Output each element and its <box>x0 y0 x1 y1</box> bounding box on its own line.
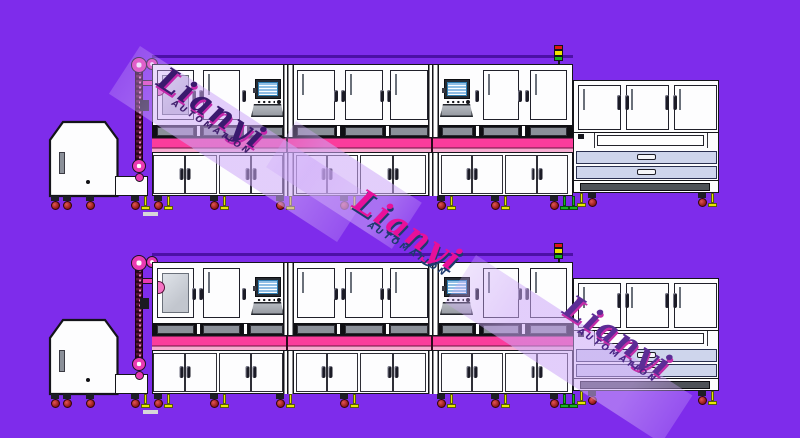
door-handle-icon <box>388 366 399 378</box>
cabinet-frame-line <box>707 331 708 346</box>
door-handle-icon <box>380 288 391 300</box>
window-panel <box>483 70 519 120</box>
hopper-dot <box>86 378 90 382</box>
cabinet-door-pair <box>219 353 283 392</box>
door-handle-icon <box>617 95 629 110</box>
cabinet-door-pair <box>505 155 568 194</box>
door-handle-icon <box>180 366 191 378</box>
bay-divider <box>428 351 439 394</box>
window-glass <box>302 74 304 95</box>
cabinet-window <box>578 85 621 130</box>
leveling-foot-icon <box>164 394 173 408</box>
hmi-monitor-icon <box>444 79 470 99</box>
cabinet-door-pair <box>441 353 503 392</box>
door-handle-icon <box>665 95 677 110</box>
caster-wheel-icon <box>209 394 219 408</box>
leveling-foot-icon <box>220 394 229 408</box>
caster-wheel-icon <box>275 394 285 408</box>
sprocket-icon <box>135 371 144 380</box>
hmi-screen <box>258 280 278 294</box>
cabinet-divider-line <box>573 180 719 181</box>
vent-insert <box>442 325 473 334</box>
window-panel <box>157 268 194 318</box>
leveling-foot-icon <box>286 394 295 408</box>
hmi-monitor-icon <box>255 79 281 99</box>
conveyor-joint <box>286 336 288 350</box>
window-panel <box>297 70 335 120</box>
hmi-power-button <box>277 298 281 302</box>
cabinet-door-pair <box>360 353 426 392</box>
caster-wheel-icon <box>85 196 95 210</box>
caster-wheel-icon <box>339 394 349 408</box>
window-glass <box>395 272 397 293</box>
window-glass <box>631 287 633 308</box>
leveling-foot-icon <box>708 193 717 207</box>
drawer-handle <box>637 154 656 161</box>
leveling-foot-icon <box>501 196 510 210</box>
cabinet-recess-panel <box>597 135 704 146</box>
window-glass <box>535 272 537 293</box>
elevator-carrier <box>140 298 149 309</box>
window-panel <box>297 268 335 318</box>
door-handle-icon <box>246 366 257 378</box>
window-glass <box>488 74 490 95</box>
keyboard-tray <box>440 104 473 117</box>
vent-post <box>385 324 390 334</box>
hopper-vent-slot <box>59 350 65 372</box>
drawer-handle <box>637 169 656 176</box>
hmi-screen <box>447 82 467 96</box>
leveling-foot-icon <box>447 196 456 210</box>
hmi-buttons <box>257 100 275 104</box>
hopper-vent-slot <box>59 152 65 174</box>
vent-insert <box>297 325 335 334</box>
window-glass <box>679 89 681 110</box>
window-glass <box>679 287 681 308</box>
sprocket-icon <box>132 159 146 173</box>
window-panel <box>345 70 383 120</box>
caster-wheel-icon <box>62 196 72 210</box>
door-handle-icon <box>334 288 345 300</box>
caster-wheel-icon <box>50 394 60 408</box>
window-glass <box>302 272 304 293</box>
window-panel <box>390 268 428 318</box>
vent-post <box>521 126 526 136</box>
bay-divider <box>428 153 439 196</box>
enclosure-top-rail <box>152 55 573 58</box>
door-handle-icon <box>617 293 629 308</box>
door-handle-icon <box>180 168 191 180</box>
caster-wheel-icon <box>436 394 446 408</box>
vent-post <box>385 126 390 136</box>
door-handle-icon <box>322 366 333 378</box>
window-panel <box>345 268 383 318</box>
cabinet-door-pair <box>441 155 503 194</box>
window-panel <box>390 70 428 120</box>
cad-canvas: LianyiAUTOMATIONLianyiAUTOMATIONLianyiAU… <box>0 0 800 438</box>
bay-divider <box>283 351 294 394</box>
caster-wheel-icon <box>209 196 219 210</box>
caster-wheel-icon <box>130 394 140 408</box>
floor-mark <box>143 410 158 414</box>
caster-wheel-icon <box>62 394 72 408</box>
window-glass <box>395 74 397 95</box>
door-handle-icon <box>467 168 478 180</box>
cabinet-door-pair <box>296 353 358 392</box>
window-panel <box>203 268 240 318</box>
conveyor-joint <box>431 336 433 350</box>
hopper-dot <box>86 180 90 184</box>
window-glass <box>162 273 189 313</box>
hmi-power-button <box>277 100 281 104</box>
vent-insert <box>157 325 194 334</box>
vent-post <box>336 324 341 334</box>
leveling-foot-icon <box>577 193 586 207</box>
cabinet-door-pair <box>153 353 217 392</box>
door-handle-icon <box>467 366 478 378</box>
caster-wheel-icon <box>490 196 500 210</box>
keyboard-tray <box>251 302 284 315</box>
caster-wheel-icon <box>490 394 500 408</box>
caster-wheel-icon <box>153 196 163 210</box>
bay-divider <box>428 65 439 137</box>
leveling-foot-icon <box>220 196 229 210</box>
door-handle-icon <box>334 90 345 102</box>
cabinet-door-pair <box>153 155 217 194</box>
cabinet-frame-line <box>594 133 595 148</box>
window-glass <box>535 74 537 95</box>
cabinet-latch <box>578 134 584 139</box>
bay-divider <box>283 263 294 335</box>
cabinet-window <box>626 85 669 130</box>
leveling-foot-icon <box>141 196 150 210</box>
caster-wheel-icon <box>436 196 446 210</box>
vent-insert <box>530 127 567 136</box>
enclosure-top-rail <box>152 253 573 256</box>
vent-insert <box>203 325 240 334</box>
window-panel <box>530 70 567 120</box>
cabinet-window <box>674 283 717 328</box>
caster-wheel-icon <box>153 394 163 408</box>
leveling-foot-icon <box>350 394 359 408</box>
caster-wheel-icon <box>587 193 597 207</box>
conveyor-joint <box>431 138 433 152</box>
cabinet-window <box>626 283 669 328</box>
caster-wheel-icon <box>549 196 559 210</box>
door-handle-icon <box>518 90 529 102</box>
hmi-buttons <box>257 298 275 302</box>
signal-tower-icon <box>554 45 564 65</box>
hmi-monitor-icon <box>255 277 281 297</box>
window-glass <box>208 272 210 293</box>
hmi-buttons <box>446 100 464 104</box>
signal-tower-icon <box>554 243 564 263</box>
window-glass <box>583 89 585 110</box>
vent-insert <box>483 127 519 136</box>
leveling-foot-icon <box>447 394 456 408</box>
caster-wheel-icon <box>697 193 707 207</box>
door-handle-icon <box>531 366 542 378</box>
window-glass <box>350 74 352 95</box>
vent-post <box>475 126 480 136</box>
leveling-foot-icon <box>560 394 569 408</box>
leveling-foot-icon <box>141 394 150 408</box>
vent-insert <box>390 127 428 136</box>
vent-insert <box>345 325 383 334</box>
sprocket-icon <box>132 357 146 371</box>
door-handle-icon <box>242 90 246 102</box>
vent-post <box>243 324 248 334</box>
door-handle-icon <box>665 293 677 308</box>
vent-insert <box>345 127 383 136</box>
floor-mark <box>143 212 158 216</box>
window-glass <box>350 272 352 293</box>
leveling-foot-icon <box>708 391 717 405</box>
caster-wheel-icon <box>549 394 559 408</box>
cabinet-bottom-recess <box>580 183 710 191</box>
caster-wheel-icon <box>50 196 60 210</box>
caster-wheel-icon <box>130 196 140 210</box>
leveling-foot-icon <box>501 394 510 408</box>
leveling-foot-icon <box>164 196 173 210</box>
caster-wheel-icon <box>697 391 707 405</box>
cabinet-frame-line <box>707 133 708 148</box>
sprocket-icon <box>131 255 147 271</box>
window-glass <box>631 89 633 110</box>
door-handle-icon <box>192 288 203 300</box>
hmi-power-button <box>466 100 470 104</box>
door-handle-icon <box>380 90 391 102</box>
door-handle-icon <box>531 168 542 180</box>
caster-wheel-icon <box>85 394 95 408</box>
hmi-screen <box>258 82 278 96</box>
vent-post <box>196 324 201 334</box>
door-handle-icon <box>242 288 246 300</box>
cabinet-window <box>674 85 717 130</box>
vent-insert <box>390 325 428 334</box>
door-handle-icon <box>388 168 399 180</box>
leveling-foot-icon <box>560 196 569 210</box>
vent-insert <box>250 325 283 334</box>
sprocket-icon <box>135 173 144 182</box>
cabinet-divider-line <box>573 132 719 133</box>
door-handle-icon <box>475 90 479 102</box>
vent-insert <box>442 127 473 136</box>
vent-post <box>336 126 341 136</box>
